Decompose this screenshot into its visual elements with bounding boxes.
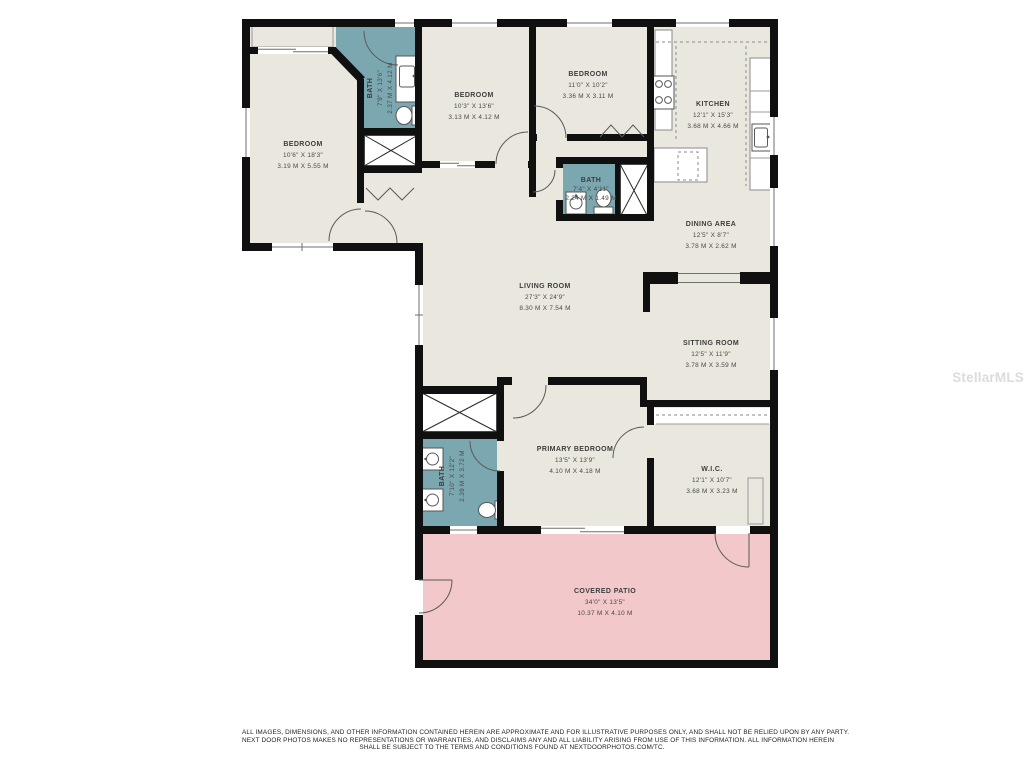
label-sitting-room: SITTING ROOM 12'5" X 11'9" 3.78 M X 3.59… bbox=[683, 340, 739, 369]
label-bedroom-2: BEDROOM 10'3" X 13'6" 3.13 M X 4.12 M bbox=[448, 92, 499, 121]
floor-plan-page: BEDROOM 10'6" X 18'3" 3.19 M X 5.55 M BA… bbox=[0, 0, 1024, 768]
floor-plan: BEDROOM 10'6" X 18'3" 3.19 M X 5.55 M BA… bbox=[0, 0, 1024, 768]
svg-text:27'3" X 24'9": 27'3" X 24'9" bbox=[525, 294, 565, 301]
wall-patio-bottom bbox=[415, 660, 778, 668]
svg-text:2.37 M X 4.12 M: 2.37 M X 4.12 M bbox=[387, 62, 394, 113]
svg-text:2.24 M X 1.49 M: 2.24 M X 1.49 M bbox=[565, 195, 616, 202]
svg-text:BATH: BATH bbox=[367, 78, 374, 99]
svg-text:BEDROOM: BEDROOM bbox=[568, 71, 607, 78]
mls-watermark: StellarMLS bbox=[946, 370, 1024, 385]
svg-text:BATH: BATH bbox=[439, 466, 446, 487]
label-bedroom-3: BEDROOM 11'0" X 10'2" 3.36 M X 3.11 M bbox=[563, 71, 614, 100]
svg-text:10'3" X 13'6": 10'3" X 13'6" bbox=[454, 103, 494, 110]
svg-text:12'5" X 8'7": 12'5" X 8'7" bbox=[693, 232, 729, 239]
bath3-sink2-icon bbox=[422, 489, 443, 511]
kitchen-peninsula bbox=[654, 148, 707, 182]
svg-text:7'10" X 12'2": 7'10" X 12'2" bbox=[449, 456, 456, 496]
svg-text:13'5" X 13'9": 13'5" X 13'9" bbox=[555, 457, 595, 464]
disclaimer-line-3: SHALL BE SUBJECT TO THE TERMS AND CONDIT… bbox=[242, 744, 782, 752]
svg-text:7'9" X 13'6": 7'9" X 13'6" bbox=[377, 70, 384, 106]
svg-text:3.13 M X 4.12 M: 3.13 M X 4.12 M bbox=[448, 114, 499, 121]
svg-text:4.10 M X 4.18 M: 4.10 M X 4.18 M bbox=[549, 468, 600, 475]
wic-shelf bbox=[654, 408, 771, 424]
svg-text:SITTING ROOM: SITTING ROOM bbox=[683, 340, 739, 347]
disclaimer-line-2: NEXT DOOR PHOTOS MAKES NO REPRESENTATION… bbox=[242, 737, 782, 745]
svg-text:3.19 M X 5.55 M: 3.19 M X 5.55 M bbox=[277, 163, 328, 170]
svg-text:COVERED PATIO: COVERED PATIO bbox=[574, 588, 636, 595]
svg-text:12'5" X 11'9": 12'5" X 11'9" bbox=[691, 351, 731, 358]
svg-text:W.I.C.: W.I.C. bbox=[701, 466, 722, 473]
label-dining-area: DINING AREA 12'5" X 8'7" 3.78 M X 2.62 M bbox=[685, 221, 736, 250]
stove-icon bbox=[652, 76, 674, 109]
bath1-vanity-icon bbox=[396, 56, 418, 102]
svg-text:8.30 M X 7.54 M: 8.30 M X 7.54 M bbox=[519, 305, 570, 312]
disclaimer-line-1: ALL IMAGES, DIMENSIONS, AND OTHER INFORM… bbox=[242, 729, 782, 737]
svg-text:12'1" X 15'3": 12'1" X 15'3" bbox=[693, 112, 733, 119]
label-living-room: LIVING ROOM 27'3" X 24'9" 8.30 M X 7.54 … bbox=[519, 283, 570, 312]
svg-text:2.39 M X 3.72 M: 2.39 M X 3.72 M bbox=[459, 450, 466, 501]
svg-text:12'1" X 10'7": 12'1" X 10'7" bbox=[692, 477, 732, 484]
svg-text:11'0" X 10'2": 11'0" X 10'2" bbox=[568, 82, 608, 89]
patio-floor bbox=[418, 530, 775, 665]
svg-text:10'6" X 18'3": 10'6" X 18'3" bbox=[283, 152, 323, 159]
label-bedroom-1: BEDROOM 10'6" X 18'3" 3.19 M X 5.55 M bbox=[277, 141, 328, 170]
svg-text:3.68 M X 4.66 M: 3.68 M X 4.66 M bbox=[687, 123, 738, 130]
svg-text:BATH: BATH bbox=[581, 177, 602, 184]
svg-text:3.68 M X 3.23 M: 3.68 M X 3.23 M bbox=[686, 488, 737, 495]
kitchen-sink-icon bbox=[752, 124, 771, 151]
svg-text:34'0" X 13'5": 34'0" X 13'5" bbox=[585, 599, 625, 606]
svg-text:BEDROOM: BEDROOM bbox=[283, 141, 322, 148]
bath1-toilet-icon bbox=[396, 106, 418, 125]
svg-text:PRIMARY BEDROOM: PRIMARY BEDROOM bbox=[537, 446, 613, 453]
svg-text:7'4" X 4'11": 7'4" X 4'11" bbox=[573, 186, 609, 193]
svg-text:LIVING ROOM: LIVING ROOM bbox=[519, 283, 570, 290]
svg-text:BEDROOM: BEDROOM bbox=[454, 92, 493, 99]
svg-text:3.36 M X 3.11 M: 3.36 M X 3.11 M bbox=[563, 93, 614, 100]
svg-text:10.37 M X 4.10 M: 10.37 M X 4.10 M bbox=[577, 610, 632, 617]
svg-text:DINING AREA: DINING AREA bbox=[686, 221, 736, 228]
svg-text:KITCHEN: KITCHEN bbox=[696, 101, 730, 108]
patio-slider bbox=[541, 526, 624, 534]
disclaimer-text: ALL IMAGES, DIMENSIONS, AND OTHER INFORM… bbox=[242, 729, 782, 752]
svg-text:3.78 M X 2.62 M: 3.78 M X 2.62 M bbox=[685, 243, 736, 250]
svg-text:3.78 M X 3.59 M: 3.78 M X 3.59 M bbox=[685, 362, 736, 369]
